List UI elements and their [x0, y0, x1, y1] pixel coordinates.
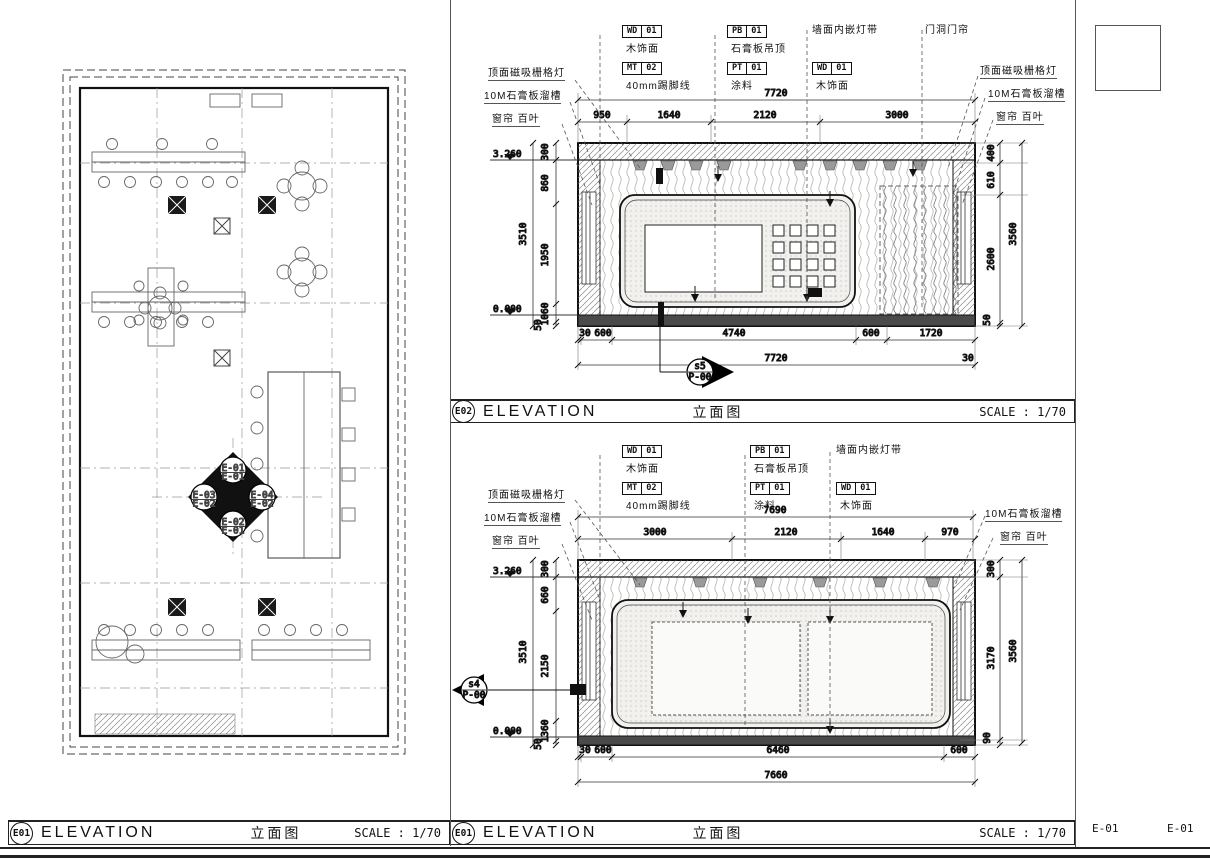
- section-marker-s4: s4 P-00: [452, 674, 578, 706]
- titlebar-tag: E01: [10, 822, 33, 845]
- plan-columns: [168, 196, 276, 616]
- dim-label: 3560: [1008, 222, 1019, 245]
- material-tag-pt01: PT 01: [750, 482, 790, 495]
- material-tag-mt02: MT 02: [622, 482, 662, 495]
- titlebar-title-cn: 立面图: [692, 823, 743, 843]
- column-divider: [450, 0, 451, 846]
- marker-label: s5: [694, 361, 705, 372]
- titlebar-title: ELEVATION: [41, 824, 155, 842]
- material-num: 01: [769, 483, 788, 494]
- material-code: WD: [623, 26, 641, 37]
- dim-label: 2120: [754, 110, 777, 121]
- material-num: 01: [855, 483, 874, 494]
- material-label: 石膏板吊顶: [731, 40, 786, 55]
- dim-label: 610: [986, 171, 997, 188]
- material-label: 木饰面: [840, 497, 873, 512]
- dim-label: 860: [540, 174, 551, 191]
- dim-label: 3000: [886, 110, 909, 121]
- dim-label: 7720: [765, 88, 788, 99]
- diamond-label: E-02: [193, 499, 216, 510]
- material-tag-wd01: WD 01: [836, 482, 876, 495]
- dim-label: 2600: [986, 247, 997, 270]
- drawing-sheet: E-01 E-01 E-03 E-02 E-04 E-02 E-02 E-01: [0, 0, 1210, 859]
- annotation-gypsum-slot: 10M石膏板溜槽: [985, 505, 1062, 522]
- material-code: PB: [728, 26, 746, 37]
- sheet-number: E-01: [1167, 822, 1194, 835]
- dim-label: 660: [540, 586, 551, 603]
- plan-elevation-marker: E-01 E-01 E-03 E-02 E-04 E-02 E-02 E-01: [188, 452, 278, 542]
- dim-label: 3000: [644, 527, 667, 538]
- material-num: 01: [641, 446, 660, 457]
- annotation-curtain-blind: 窗帘 百叶: [1000, 528, 1048, 545]
- annotation-wall-light: 墙面内嵌灯带: [836, 441, 902, 456]
- material-code: WD: [837, 483, 855, 494]
- dim-label: 3170: [986, 646, 997, 669]
- titlebar-e01-plan: E01 ELEVATION 立面图 SCALE : 1/70: [8, 820, 450, 845]
- dim-label: 300: [540, 143, 551, 160]
- dim-label: 50: [982, 314, 993, 326]
- material-num: 01: [746, 63, 765, 74]
- material-label: 40mm踢脚线: [626, 77, 691, 92]
- material-label: 40mm踢脚线: [626, 497, 691, 512]
- material-num: 01: [641, 26, 660, 37]
- dim-label: 6460: [767, 745, 790, 756]
- material-num: 02: [641, 483, 660, 494]
- dim-label: 600: [862, 328, 879, 339]
- dim-label: 90: [982, 732, 993, 744]
- dim-label: 400: [986, 144, 997, 161]
- dim-label: 30: [579, 328, 591, 339]
- revision-box: [1095, 25, 1161, 91]
- titlebar-scale: SCALE : 1/70: [979, 826, 1066, 840]
- material-label: 木饰面: [626, 40, 659, 55]
- annotation-grid-light: 顶面磁吸栅格灯: [488, 64, 565, 81]
- titlebar-title: ELEVATION: [483, 403, 597, 421]
- dim-label: 600: [594, 328, 611, 339]
- titlebar-title: ELEVATION: [483, 824, 597, 842]
- floor-plan: E-01 E-01 E-03 E-02 E-04 E-02 E-02 E-01: [63, 70, 405, 754]
- dim-label: 50: [533, 738, 544, 750]
- dim-label: 2150: [540, 654, 551, 677]
- dim-label: 970: [941, 527, 958, 538]
- level-label: 0.000: [493, 726, 522, 737]
- annotation-curtain-blind: 窗帘 百叶: [996, 108, 1044, 125]
- titlebar-title-cn: 立面图: [692, 402, 743, 422]
- titlebar-title-cn: 立面图: [250, 823, 301, 843]
- annotation-gypsum-slot: 10M石膏板溜槽: [484, 509, 561, 526]
- material-label: 涂料: [754, 497, 776, 512]
- sheet-edge-line: [0, 855, 1210, 858]
- plan-furniture: [92, 94, 370, 734]
- material-label: 木饰面: [816, 77, 849, 92]
- material-tag-wd01: WD 01: [622, 25, 662, 38]
- material-num: 01: [746, 26, 765, 37]
- dim-label: 2120: [775, 527, 798, 538]
- drawing-linework: E-01 E-01 E-03 E-02 E-04 E-02 E-02 E-01: [0, 0, 1210, 859]
- titlebar-e01-elevation: E01 ELEVATION 立面图 SCALE : 1/70: [450, 820, 1075, 845]
- material-code: WD: [623, 446, 641, 457]
- dim-label: 300: [986, 560, 997, 577]
- dim-label: 30: [962, 353, 974, 364]
- level-label: 0.000: [493, 304, 522, 315]
- dim-label: 1720: [920, 328, 943, 339]
- annotation-gypsum-slot: 10M石膏板溜槽: [484, 87, 561, 104]
- titlebar-e02: E02 ELEVATION 立面图 SCALE : 1/70: [450, 399, 1075, 423]
- sheet-border-line: [0, 847, 1210, 849]
- annotation-gypsum-slot: 10M石膏板溜槽: [988, 85, 1065, 102]
- dim-label: 4740: [723, 328, 746, 339]
- sheet-border-divider: [1075, 0, 1076, 848]
- dim-label: 1640: [658, 110, 681, 121]
- material-tag-pb01: PB 01: [750, 445, 790, 458]
- material-label: 石膏板吊顶: [754, 460, 809, 475]
- material-num: 01: [769, 446, 788, 457]
- dim-label: 7720: [765, 353, 788, 364]
- titlebar-scale: SCALE : 1/70: [354, 826, 441, 840]
- material-tag-pt01: PT 01: [727, 62, 767, 75]
- material-tag-mt02: MT 02: [622, 62, 662, 75]
- dim-label: 300: [540, 560, 551, 577]
- material-code: MT: [623, 63, 641, 74]
- annotation-grid-light: 顶面磁吸栅格灯: [980, 62, 1057, 79]
- material-code: WD: [813, 63, 831, 74]
- material-code: PB: [751, 446, 769, 457]
- dim-label: 600: [594, 745, 611, 756]
- material-code: PT: [751, 483, 769, 494]
- material-tag-wd01: WD 01: [812, 62, 852, 75]
- marker-label: s4: [468, 679, 480, 690]
- titlebar-tag: E01: [452, 822, 475, 845]
- diamond-label: E-01: [222, 472, 245, 483]
- material-tag-wd01: WD 01: [622, 445, 662, 458]
- diamond-label: E-01: [222, 526, 245, 537]
- curtain: [880, 186, 958, 314]
- titlebar-scale: SCALE : 1/70: [979, 405, 1066, 419]
- annotation-curtain-blind: 窗帘 百叶: [492, 532, 540, 549]
- dim-label: 30: [579, 745, 591, 756]
- material-code: MT: [623, 483, 641, 494]
- dim-label: 1640: [872, 527, 895, 538]
- material-code: PT: [728, 63, 746, 74]
- level-label: 3.260: [493, 566, 522, 577]
- elevation-e02: s5 P-00 7720 950 1640 2120 3000 300 860 …: [490, 30, 1028, 388]
- dim-label: 3560: [1008, 639, 1019, 662]
- level-label: 3.260: [493, 149, 522, 160]
- annotation-curtain-blind: 窗帘 百叶: [492, 110, 540, 127]
- sheet-number: E-01: [1092, 822, 1119, 835]
- marker-label: P-00: [689, 372, 712, 383]
- material-num: 02: [641, 63, 660, 74]
- material-tag-pb01: PB 01: [727, 25, 767, 38]
- titlebar-tag: E02: [452, 400, 475, 423]
- diamond-label: E-02: [251, 499, 274, 510]
- dim-label: 950: [593, 110, 610, 121]
- material-label: 木饰面: [626, 460, 659, 475]
- material-label: 涂料: [731, 77, 753, 92]
- annotation-grid-light: 顶面磁吸栅格灯: [488, 486, 565, 503]
- dim-label: 3510: [518, 640, 529, 663]
- dim-label: 600: [950, 745, 967, 756]
- annotation-wall-light: 墙面内嵌灯带: [812, 21, 878, 36]
- dim-label: 3510: [518, 222, 529, 245]
- material-num: 01: [831, 63, 850, 74]
- annotation-door-curtain: 门洞门帘: [925, 21, 969, 36]
- dim-label: 50: [533, 319, 544, 331]
- marker-label: P-00: [463, 690, 486, 701]
- dim-label: 7660: [765, 770, 788, 781]
- dim-label: 1950: [540, 243, 551, 266]
